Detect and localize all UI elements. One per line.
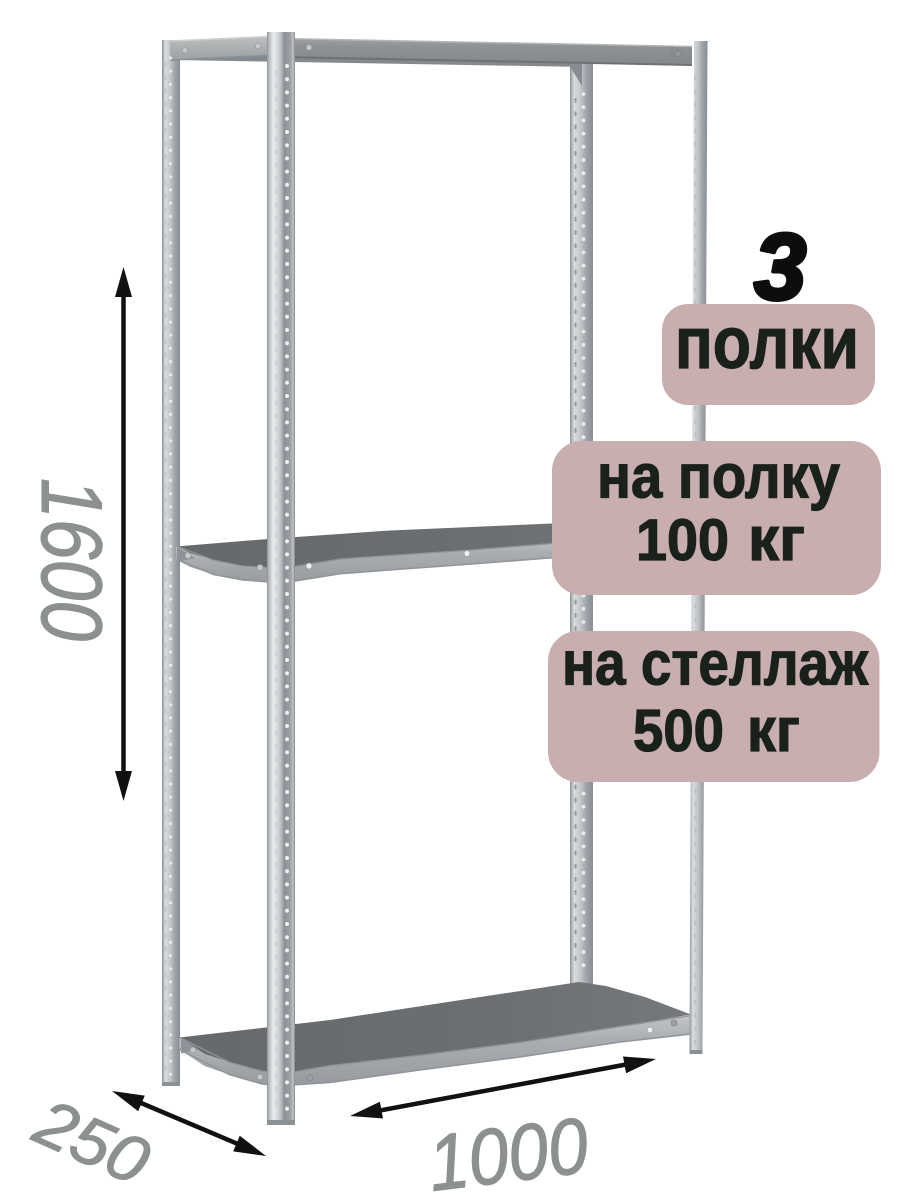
svg-text:500: 500 [633, 698, 724, 764]
svg-text:полки: полки [675, 303, 859, 384]
svg-text:1600: 1600 [23, 478, 119, 641]
svg-text:100: 100 [636, 508, 729, 573]
svg-text:кг: кг [747, 696, 800, 765]
svg-text:на полку: на полку [597, 443, 840, 512]
svg-text:на стеллаж: на стеллаж [562, 630, 869, 699]
svg-text:1000: 1000 [423, 1100, 593, 1200]
svg-text:кг: кг [748, 505, 805, 574]
